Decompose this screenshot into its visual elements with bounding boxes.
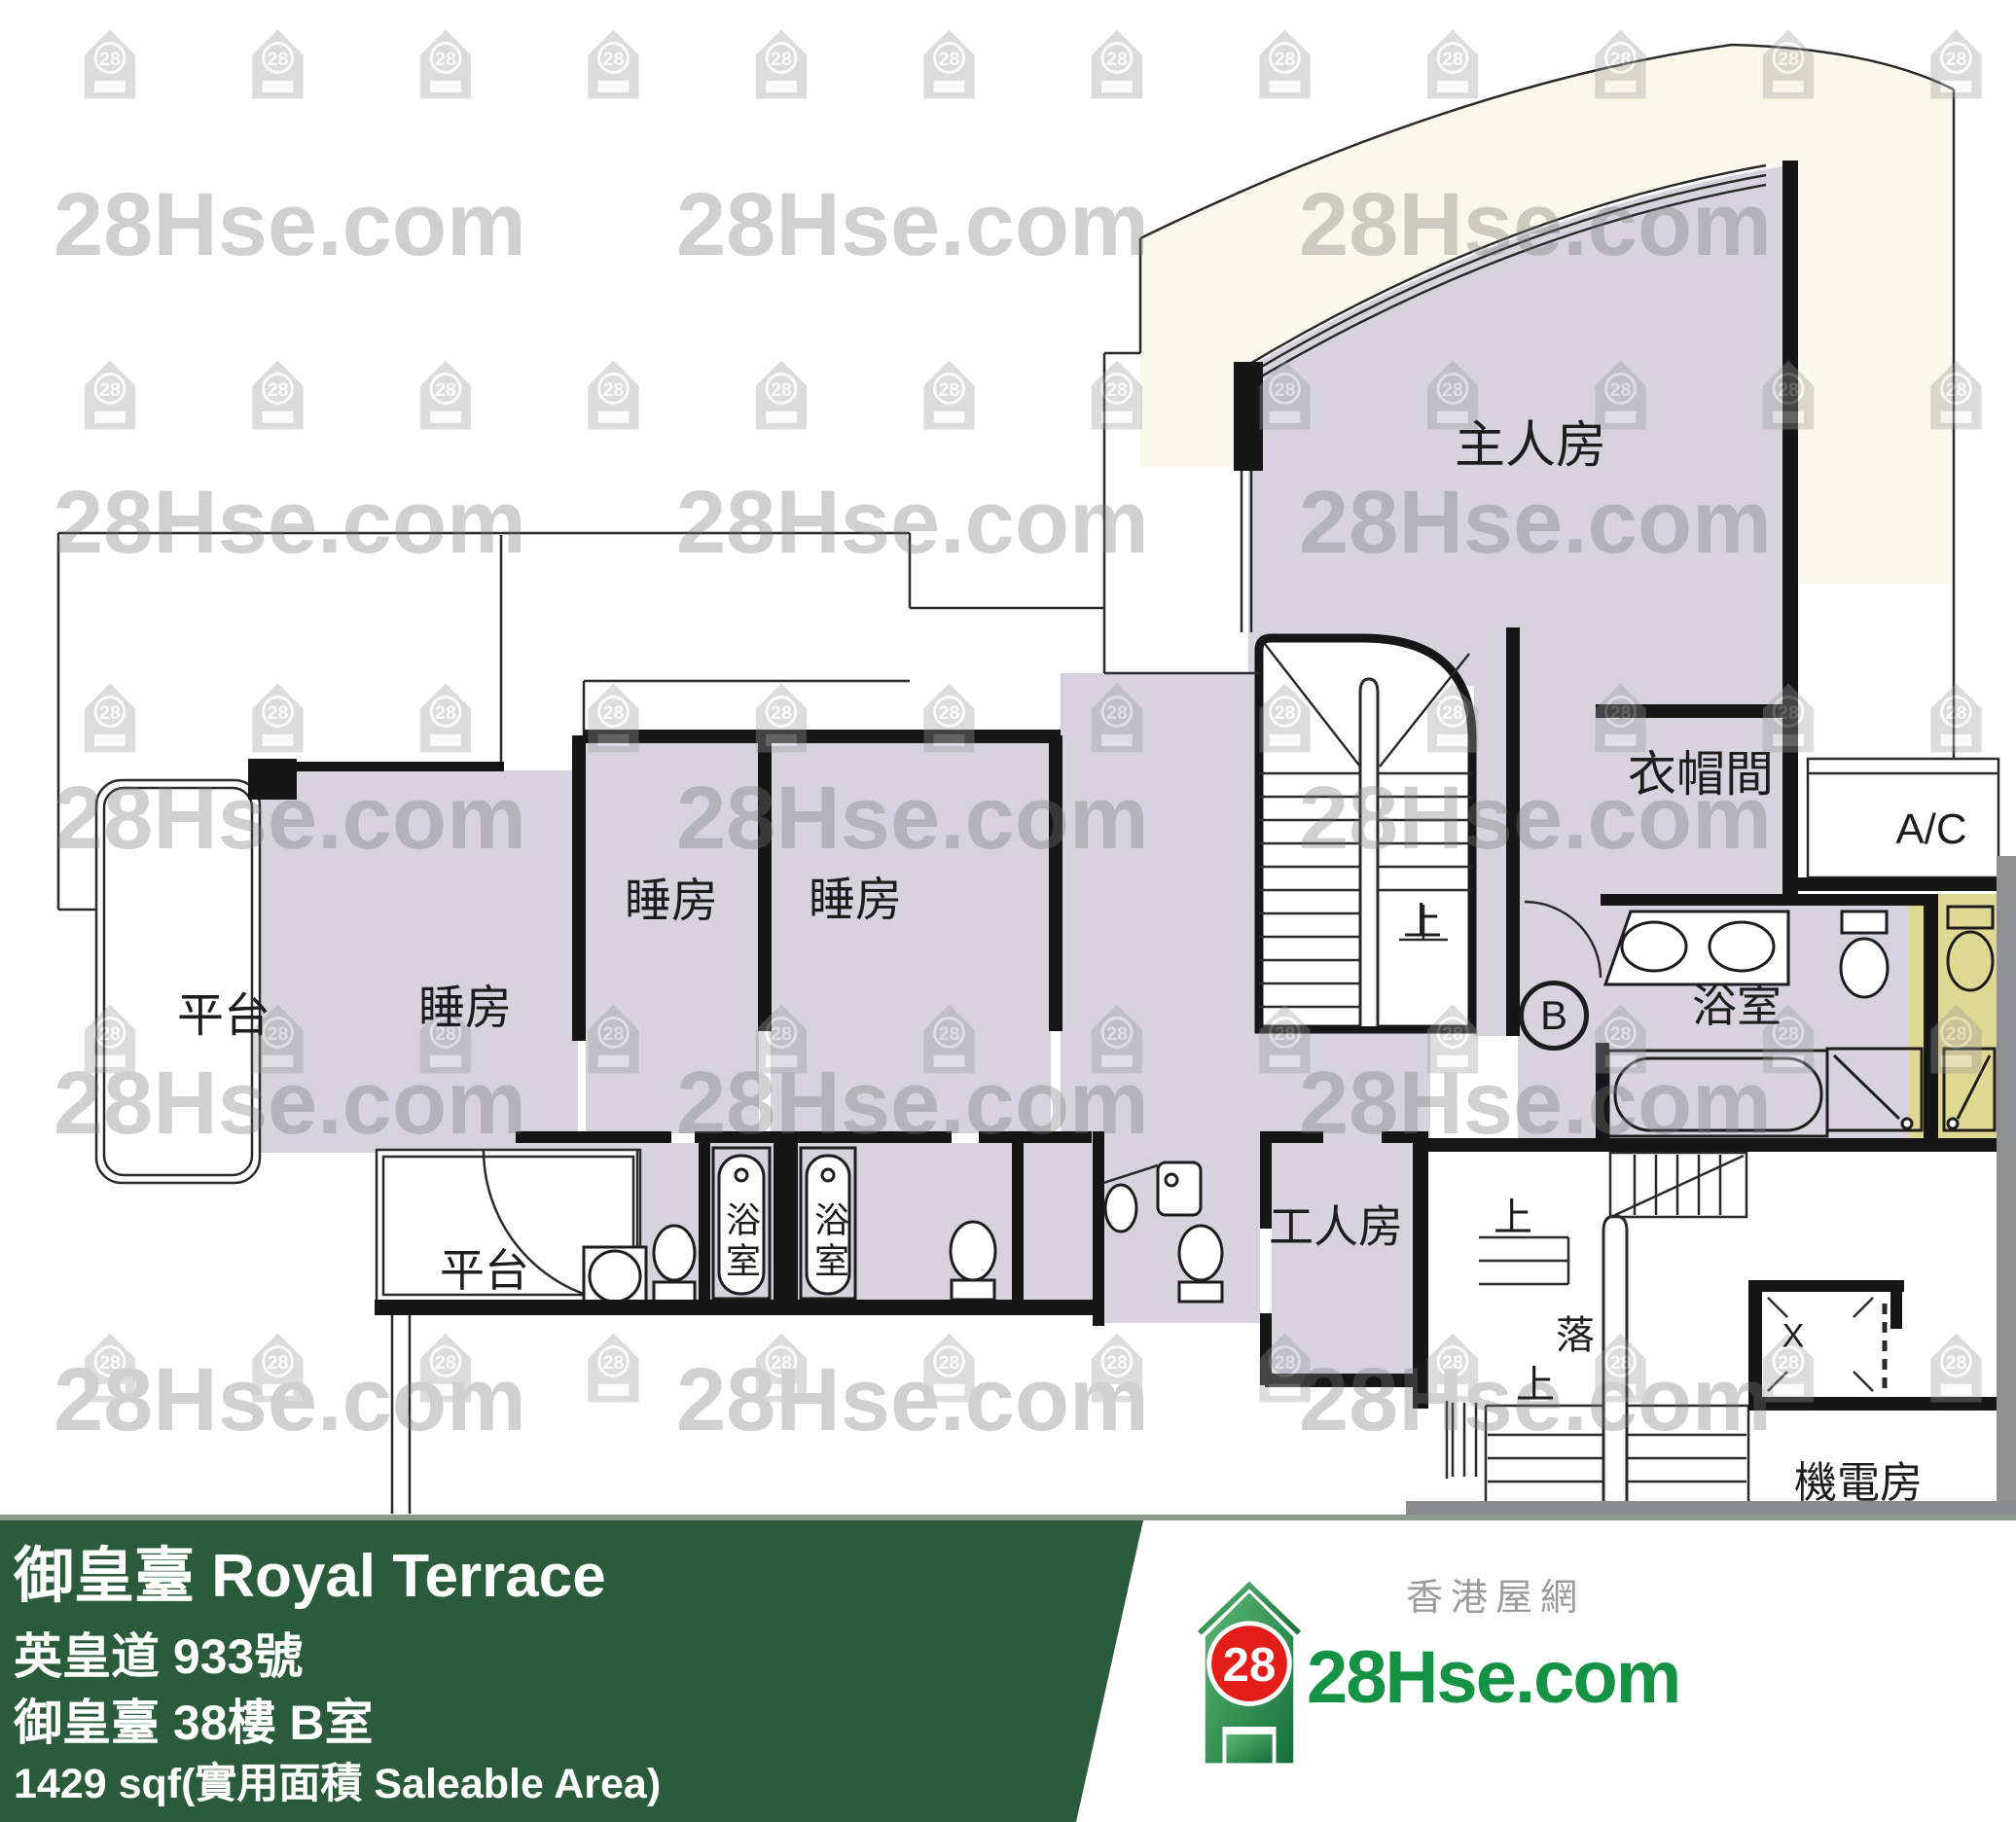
logo-number: 28 <box>1223 1638 1277 1692</box>
label-bedroom-3: 睡房 <box>809 861 902 929</box>
label-lift-x: X <box>1782 1318 1805 1356</box>
label-closet: 衣帽間 <box>1628 735 1774 805</box>
label-master-bathroom: 浴室 <box>1692 971 1782 1035</box>
estate-address: 英皇道 933號 <box>14 1618 303 1688</box>
28hse-logo: 28 28Hse.com 香港屋網 <box>1182 1520 2016 1822</box>
room-labels: 主人房 衣帽間 A/C 睡房 睡房 睡房 平台 平台 工人房 浴室 浴室 浴室 … <box>0 0 2016 1537</box>
label-bathroom-2: 浴室 <box>804 1201 854 1283</box>
label-bedroom-1: 睡房 <box>418 969 512 1037</box>
logo-site-name: 香港屋網 <box>1406 1567 1585 1621</box>
unit-b-letter: B <box>1540 992 1567 1039</box>
label-plant-room: 機電房 <box>1794 1447 1923 1510</box>
label-bathroom-1: 浴室 <box>715 1201 766 1283</box>
label-maid-room: 工人房 <box>1269 1192 1403 1256</box>
label-stairs-down: 落 <box>1556 1304 1595 1360</box>
28hse-house-icon: 28 <box>1192 1574 1307 1768</box>
label-bedroom-2: 睡房 <box>625 862 718 930</box>
label-terrace-1: 平台 <box>177 977 270 1045</box>
estate-unit: 御皇臺 38樓 B室 <box>14 1684 374 1754</box>
property-info-banner: 御皇臺 Royal Terrace 英皇道 933號 御皇臺 38樓 B室 14… <box>0 1520 2016 1822</box>
floor-plan-page: 28 <box>0 0 2016 1822</box>
label-terrace-2: 平台 <box>440 1235 529 1300</box>
logo-brand-text: 28Hse.com <box>1307 1635 1679 1720</box>
label-ac: A/C <box>1895 805 1966 854</box>
estate-area: 1429 sqf(實用面積 Saleable Area) <box>14 1750 661 1810</box>
label-stairs-up-2: 上 <box>1516 1353 1555 1410</box>
label-master-bedroom: 主人房 <box>1455 405 1606 478</box>
label-stairs-up-1: 上 <box>1494 1186 1532 1242</box>
unit-b-marker: B <box>1519 981 1589 1051</box>
label-stairs-up-internal: 上 <box>1403 890 1442 947</box>
estate-title: 御皇臺 Royal Terrace <box>14 1526 606 1614</box>
